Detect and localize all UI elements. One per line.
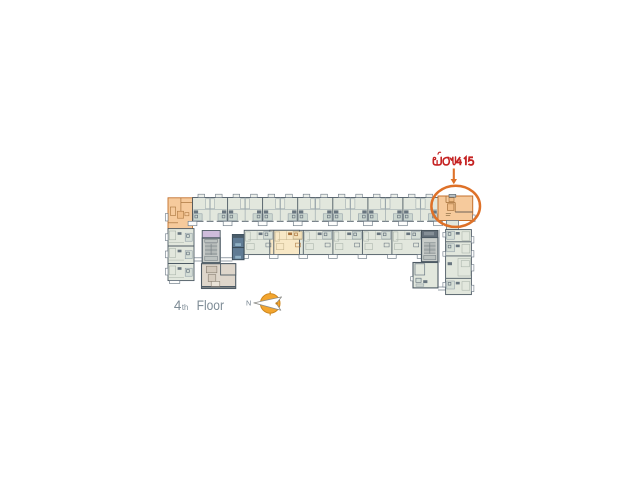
svg-text:Floor: Floor	[197, 298, 225, 313]
svg-text:N: N	[246, 299, 251, 308]
svg-text:th: th	[182, 303, 189, 312]
svg-text:4: 4	[174, 298, 182, 313]
